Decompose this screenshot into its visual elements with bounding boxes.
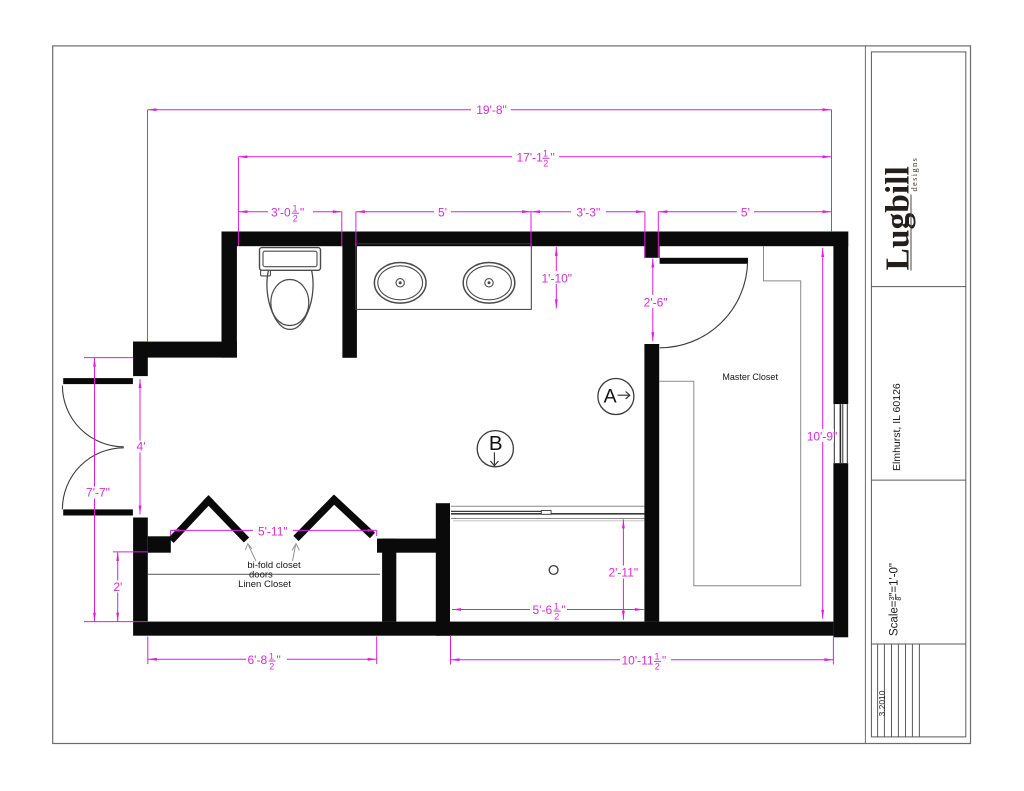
svg-text:5': 5' bbox=[741, 205, 750, 219]
svg-text:A: A bbox=[604, 385, 617, 407]
svg-text:5'-6: 5'-6 bbox=[533, 603, 553, 617]
svg-text:": " bbox=[300, 205, 304, 219]
svg-text:2': 2' bbox=[113, 580, 122, 594]
svg-text:B: B bbox=[489, 432, 503, 455]
svg-text:5'-11": 5'-11" bbox=[258, 524, 288, 538]
svg-text:2: 2 bbox=[269, 661, 274, 671]
svg-text:1: 1 bbox=[543, 149, 548, 159]
svg-text:2'-6": 2'-6" bbox=[644, 295, 668, 309]
svg-text:Linen Closet: Linen Closet bbox=[238, 579, 291, 590]
svg-text:5': 5' bbox=[438, 205, 447, 219]
svg-text:": " bbox=[551, 150, 555, 164]
svg-text:1: 1 bbox=[655, 652, 660, 662]
svg-text:7'-7": 7'-7" bbox=[86, 486, 110, 500]
svg-text:2: 2 bbox=[554, 611, 559, 621]
svg-text:6'-8: 6'-8 bbox=[248, 653, 268, 667]
svg-text:2: 2 bbox=[655, 662, 660, 672]
svg-text:1: 1 bbox=[554, 601, 559, 611]
svg-text:1: 1 bbox=[293, 204, 298, 214]
svg-text:Elmhurst, IL 60126: Elmhurst, IL 60126 bbox=[891, 383, 903, 471]
svg-text:10'-9": 10'-9" bbox=[807, 429, 838, 443]
svg-text:": " bbox=[277, 653, 281, 667]
svg-text:1'-10": 1'-10" bbox=[542, 271, 573, 285]
svg-text:1: 1 bbox=[269, 651, 274, 661]
svg-text:Master Closet: Master Closet bbox=[722, 372, 778, 382]
svg-text:19'-8": 19'-8" bbox=[476, 103, 507, 117]
svg-text:2: 2 bbox=[293, 214, 298, 224]
svg-text:10'-11: 10'-11 bbox=[622, 654, 654, 668]
svg-text:3'-0: 3'-0 bbox=[271, 205, 291, 219]
svg-text:2'-11": 2'-11" bbox=[608, 566, 638, 580]
svg-text:4': 4' bbox=[137, 440, 146, 454]
svg-text:": " bbox=[562, 603, 566, 617]
svg-text:2: 2 bbox=[543, 159, 548, 169]
svg-text:": " bbox=[662, 654, 666, 668]
svg-text:17'-1: 17'-1 bbox=[517, 150, 544, 164]
svg-text:designs: designs bbox=[909, 157, 919, 192]
svg-text:3.2010: 3.2010 bbox=[877, 690, 887, 716]
svg-text:3'-3": 3'-3" bbox=[576, 205, 600, 219]
